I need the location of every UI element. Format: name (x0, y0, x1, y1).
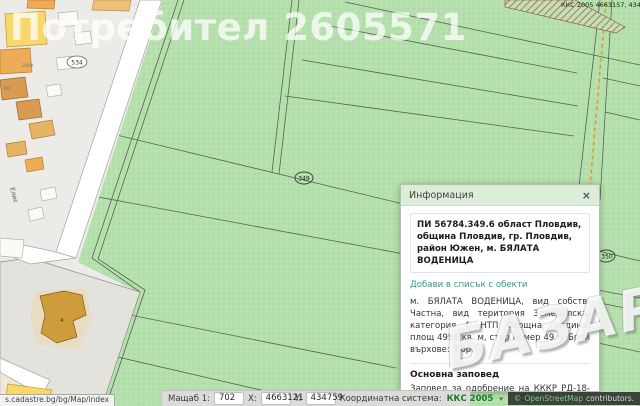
parcel-350-label: 350 (601, 254, 613, 261)
add-to-list-link[interactable]: Добави в списък с обекти (410, 280, 590, 290)
crs-label: Координатна система: (340, 394, 442, 404)
building-code-label: 2МЖ (22, 63, 34, 69)
crs-select[interactable]: ККС 2005 (447, 394, 494, 404)
y-label: Y: (295, 394, 302, 404)
close-icon[interactable]: × (582, 190, 591, 201)
info-panel-header: Информация × (401, 185, 599, 206)
x-coordinate-value[interactable]: 4663121 (261, 392, 291, 405)
scale-label: Мащаб 1: (168, 394, 210, 404)
scale-value[interactable]: 702 (214, 392, 244, 405)
building-number-label: 4 (60, 318, 64, 324)
user-watermark: Потребител 2605571 (10, 6, 467, 49)
parcel-title: ПИ 56784.349.6 област Пловдив, община Пл… (410, 213, 590, 273)
cadastre-map-app: 534 Елис 2МЖ МС 4 349 350 Потребител 260… (0, 0, 640, 406)
x-label: X: (248, 394, 257, 404)
parcel-349-label: 349 (298, 176, 310, 183)
y-coordinate-value[interactable]: 434759 (306, 392, 336, 405)
info-panel-title: Информация (409, 190, 474, 201)
openstreetmap-link[interactable]: OpenStreetMap (524, 394, 583, 403)
contributors-text: contributors. (586, 394, 634, 403)
chevron-down-icon[interactable]: ▾ (499, 395, 503, 403)
status-bar: Мащаб 1: 702 X: 4663121 Y: 434759 Коорди… (161, 390, 471, 406)
link-preview: s.cadastre.bg/bg/Map/index (0, 394, 115, 406)
copyright-symbol: © (514, 394, 522, 403)
cursor-coordinates: ККС 2005 4663157, 434825 (561, 1, 640, 9)
osm-attribution: © OpenStreetMap contributors. (508, 392, 640, 405)
building-code-label: МС (4, 86, 11, 92)
road-sign-label: 534 (71, 60, 83, 67)
